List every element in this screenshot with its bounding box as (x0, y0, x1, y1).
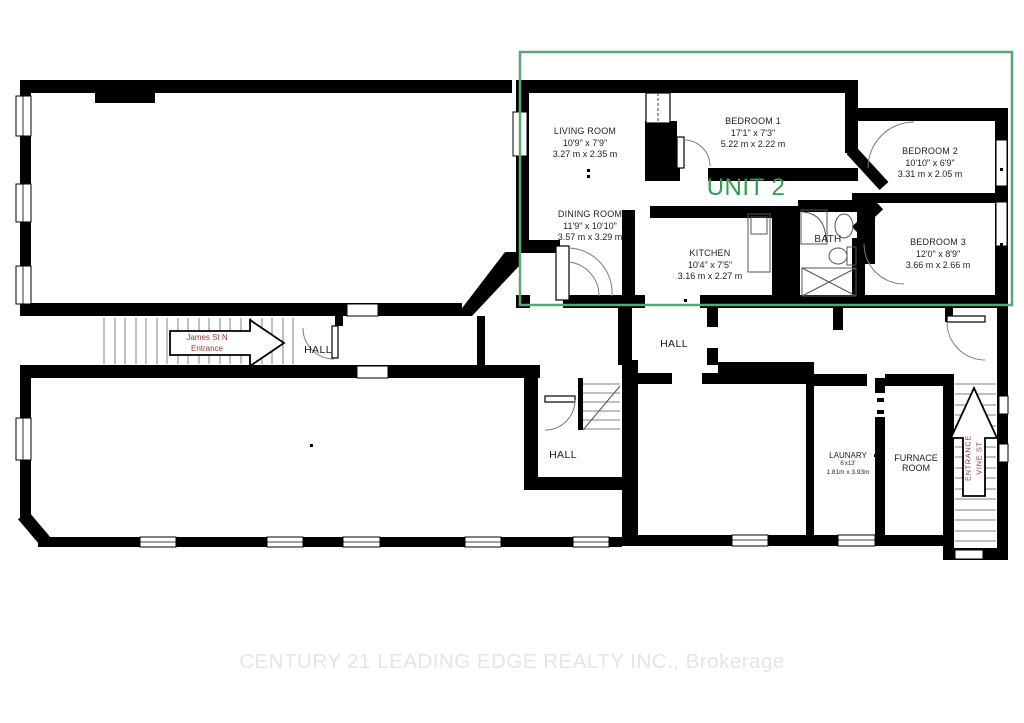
label-dining-room: DINING ROOM 11'9" x 10'10" 3.57 m x 3.29… (558, 209, 623, 244)
label-bath: BATH (814, 234, 841, 247)
brokerage-watermark: CENTURY 21 LEADING EDGE REALTY INC., Bro… (0, 650, 1024, 674)
label-living-room: LIVING ROOM 10'9" x 7'9" 3.27 m x 2.35 m (553, 126, 618, 161)
label-hall-middle: HALL (660, 338, 688, 351)
label-bedroom-3: BEDROOM 3 12'0" x 8'9" 3.66 m x 2.66 m (906, 237, 971, 272)
kitchen-fixtures (748, 214, 770, 272)
unit2-title: UNIT 2 (707, 174, 786, 202)
vine-st-text-line1: VINE ST (975, 441, 984, 474)
bath-fixtures (801, 210, 856, 296)
label-hall-lower: HALL (549, 449, 577, 462)
label-hall-upper: HALL (304, 344, 332, 357)
label-kitchen: KITCHEN 10'4" x 7'5" 3.16 m x 2.27 m (678, 248, 743, 283)
vine-st-text-line2: ENTRANCE (964, 435, 973, 481)
james-st-entrance-text: James St N Entrance (186, 333, 227, 355)
label-bedroom-1: BEDROOM 1 17'1" x 7'3" 5.22 m x 2.22 m (721, 116, 786, 151)
label-bedroom-2: BEDROOM 2 10'10" x 6'9" 3.31 m x 2.05 m (898, 146, 963, 181)
label-furnace-room: FURNACE ROOM (891, 453, 941, 474)
stairs-lower-hall (583, 384, 620, 430)
floor-plan-drawing (0, 0, 1024, 723)
toilet (829, 248, 847, 264)
floor-plan: LIVING ROOM 10'9" x 7'9" 3.27 m x 2.35 m… (0, 0, 1024, 723)
label-laundry: LAUNARY 6'x13' 1.81m x 3.93m (827, 451, 870, 477)
kitchen-appliance (751, 217, 767, 234)
